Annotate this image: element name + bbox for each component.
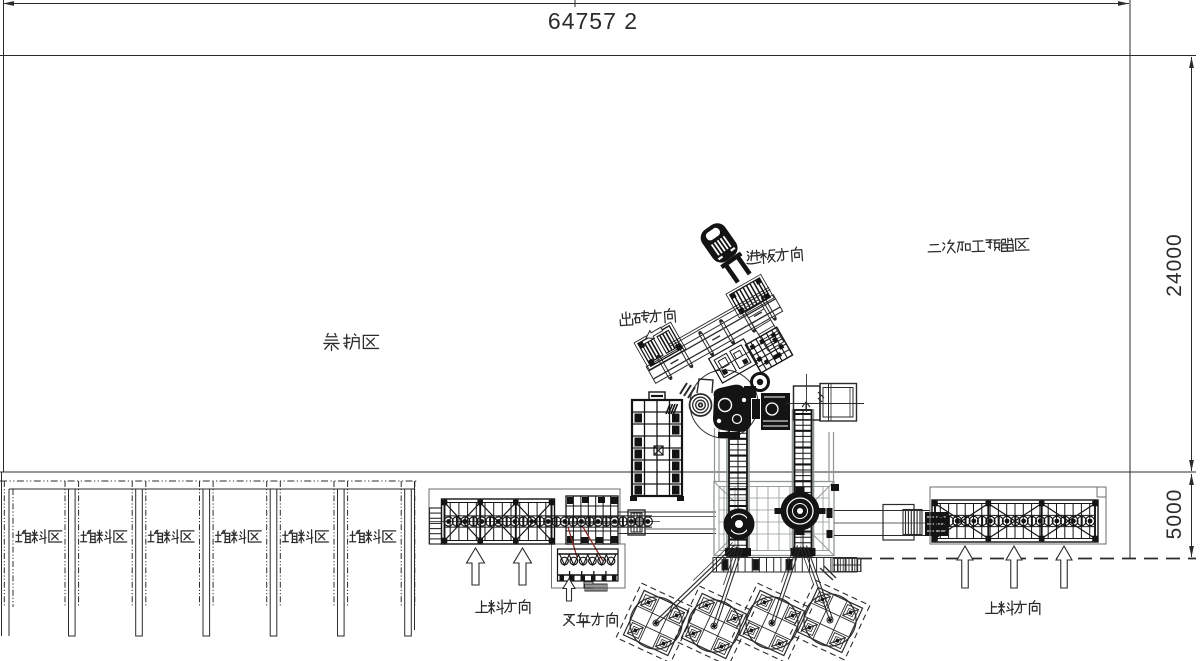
svg-text:24000: 24000 bbox=[1163, 233, 1186, 296]
svg-text:5000: 5000 bbox=[1163, 489, 1186, 540]
svg-text:64757 2: 64757 2 bbox=[548, 8, 638, 34]
